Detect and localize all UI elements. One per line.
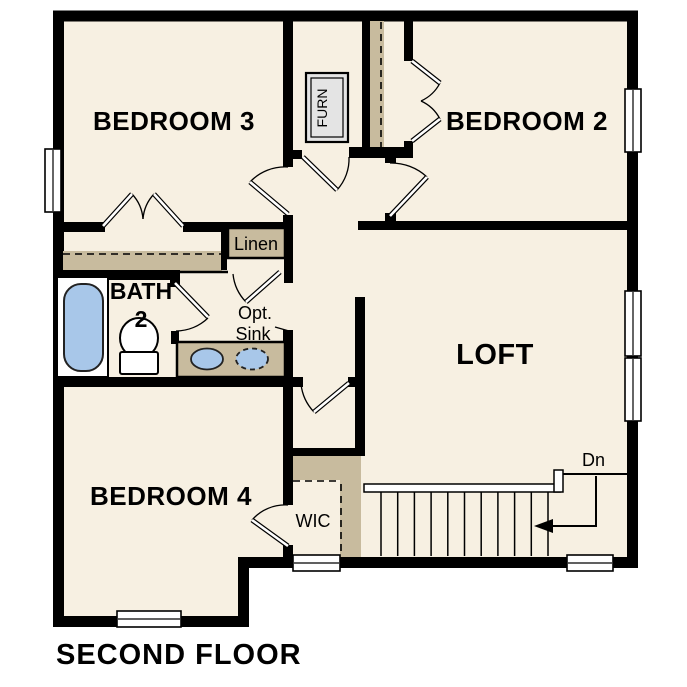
floor-plan-drawing: BEDROOM 3 BEDROOM 2 BEDROOM 4 LOFT BATH … <box>0 0 687 687</box>
loft-label: LOFT <box>456 339 534 371</box>
stair-newel-post <box>554 470 563 492</box>
bedroom2-closet-shelf <box>370 21 384 150</box>
plan-title: SECOND FLOOR <box>56 639 302 671</box>
bedroom2-label: BEDROOM 2 <box>446 106 608 136</box>
linen-label: Linen <box>234 234 278 254</box>
opt-sink-label-line2: Sink <box>235 324 271 344</box>
stair-railing <box>364 484 560 492</box>
bathtub <box>64 284 103 371</box>
optional-sink <box>236 349 268 370</box>
wic-window <box>293 555 340 571</box>
bath-label-line1: BATH <box>110 278 172 304</box>
opt-sink-label-line1: Opt. <box>238 303 272 323</box>
loft-window-lower <box>625 358 641 421</box>
bedroom3-label: BEDROOM 3 <box>93 106 255 136</box>
bedroom3-window <box>45 149 61 212</box>
vanity-sink <box>191 349 223 370</box>
bedroom4-label: BEDROOM 4 <box>90 481 252 511</box>
stair-window <box>567 555 613 571</box>
furnace-label: FURN <box>314 89 330 128</box>
floor-plan-page: BEDROOM 3 BEDROOM 2 BEDROOM 4 LOFT BATH … <box>0 0 687 687</box>
loft-window-upper <box>625 291 641 356</box>
bedroom4-window <box>117 611 181 627</box>
toilet-tank <box>120 352 158 374</box>
bath-label-line2: 2 <box>135 306 148 332</box>
stairs-down-label: Dn <box>582 450 605 470</box>
bedroom2-window <box>625 89 641 152</box>
wic-label: WIC <box>296 511 331 531</box>
